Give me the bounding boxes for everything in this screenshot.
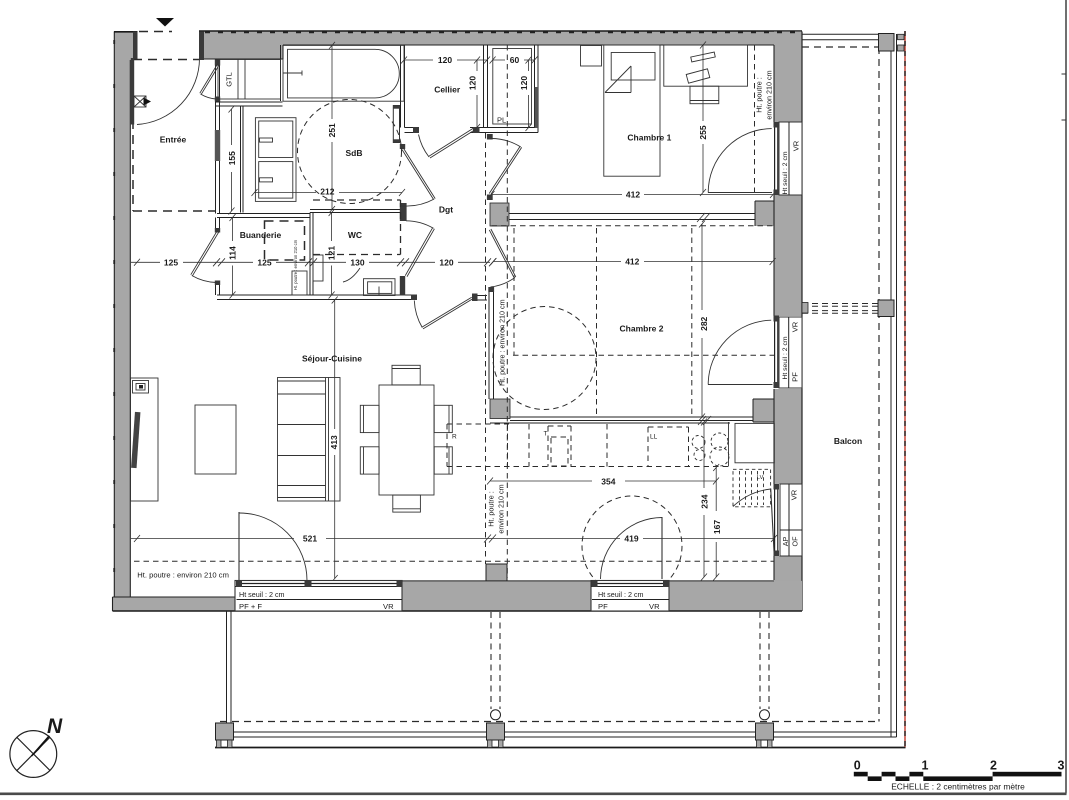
svg-text:419: 419 <box>624 534 638 544</box>
svg-text:LV: LV <box>757 475 764 481</box>
svg-text:Ht. poutre : environ 210 cm: Ht. poutre : environ 210 cm <box>293 239 298 290</box>
svg-text:Ht seuil : 2 cm: Ht seuil : 2 cm <box>239 590 285 599</box>
svg-text:N: N <box>47 715 63 738</box>
svg-text:3: 3 <box>1058 759 1065 773</box>
svg-text:VR: VR <box>790 489 799 500</box>
svg-text:R: R <box>452 434 457 441</box>
svg-text:2: 2 <box>990 759 997 773</box>
svg-text:T: T <box>544 431 548 438</box>
svg-text:155: 155 <box>227 151 237 165</box>
svg-text:Ht. poutre :: Ht. poutre : <box>755 77 764 113</box>
svg-text:60: 60 <box>510 55 520 65</box>
svg-text:environ 210 cm: environ 210 cm <box>497 484 506 533</box>
svg-text:VR: VR <box>649 602 660 611</box>
svg-text:environ 210 cm: environ 210 cm <box>765 70 774 119</box>
svg-text:212: 212 <box>320 187 334 197</box>
svg-text:LL: LL <box>650 434 658 441</box>
svg-text:354: 354 <box>601 476 615 486</box>
svg-text:521: 521 <box>303 534 317 544</box>
svg-text:OF: OF <box>791 536 800 547</box>
svg-text:Séjour-Cuisine: Séjour-Cuisine <box>302 353 362 363</box>
svg-text:Entrée: Entrée <box>160 135 187 145</box>
svg-text:PF: PF <box>791 372 800 382</box>
svg-text:412: 412 <box>626 190 640 200</box>
svg-text:Ht. poutre :: Ht. poutre : <box>487 491 496 527</box>
svg-text:0: 0 <box>854 759 861 773</box>
svg-text:120: 120 <box>439 257 453 267</box>
svg-text:Ht. poutre : environ 210 cm: Ht. poutre : environ 210 cm <box>498 299 507 386</box>
svg-text:Ht seuil : 2 cm: Ht seuil : 2 cm <box>782 336 789 379</box>
svg-text:Buanderie: Buanderie <box>240 230 282 240</box>
svg-text:Ht seuil : 2 cm: Ht seuil : 2 cm <box>782 151 789 194</box>
svg-text:Chambre 2: Chambre 2 <box>620 324 664 334</box>
svg-text:413: 413 <box>329 435 339 449</box>
svg-text:Dgt: Dgt <box>439 205 453 215</box>
svg-text:VR: VR <box>383 602 394 611</box>
svg-text:Ht seuil : 2 cm: Ht seuil : 2 cm <box>598 590 644 599</box>
svg-text:120: 120 <box>438 55 452 65</box>
svg-text:251: 251 <box>327 123 337 137</box>
svg-text:PL: PL <box>497 116 506 125</box>
svg-text:VR: VR <box>792 140 801 151</box>
svg-text:234: 234 <box>700 494 710 508</box>
svg-text:Cellier: Cellier <box>434 85 461 95</box>
svg-text:412: 412 <box>625 257 639 267</box>
svg-text:AP: AP <box>781 537 790 547</box>
svg-text:Chambre 1: Chambre 1 <box>627 133 671 143</box>
svg-text:GTL: GTL <box>225 72 234 87</box>
svg-text:Ht. poutre : environ 210 cm: Ht. poutre : environ 210 cm <box>137 571 229 580</box>
svg-text:125: 125 <box>257 257 271 267</box>
svg-text:PF: PF <box>598 602 608 611</box>
svg-text:255: 255 <box>698 125 708 139</box>
svg-text:125: 125 <box>164 257 178 267</box>
svg-text:WC: WC <box>348 230 362 240</box>
svg-text:167: 167 <box>712 520 722 534</box>
svg-text:VR: VR <box>791 321 800 332</box>
svg-text:121: 121 <box>327 246 337 260</box>
svg-text:114: 114 <box>228 246 238 260</box>
svg-text:SdB: SdB <box>346 148 363 158</box>
svg-text:Balcon: Balcon <box>834 436 862 446</box>
svg-text:ECHELLE : 2 centimètres par mè: ECHELLE : 2 centimètres par mètre <box>891 782 1025 792</box>
svg-text:282: 282 <box>699 316 709 330</box>
svg-text:1: 1 <box>922 759 929 773</box>
svg-text:120: 120 <box>519 76 529 90</box>
svg-text:PF + F: PF + F <box>239 602 262 611</box>
svg-text:130: 130 <box>350 257 364 267</box>
svg-text:120: 120 <box>468 76 478 90</box>
